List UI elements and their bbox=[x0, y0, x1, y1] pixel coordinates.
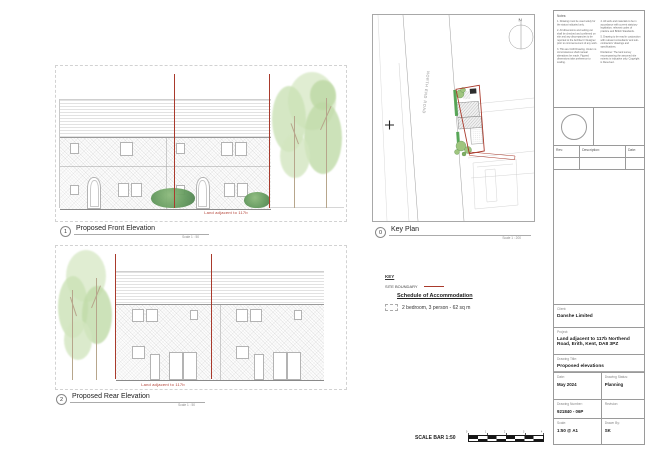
north-label: N bbox=[519, 18, 522, 23]
window bbox=[190, 310, 198, 320]
project-label: Project: bbox=[557, 330, 641, 334]
site-boundary-strip bbox=[470, 152, 516, 160]
front-house-1 bbox=[60, 138, 166, 209]
unit-swatch bbox=[385, 304, 398, 311]
scale-bar: SCALE BAR 1:50 0 1 2 3 4 bbox=[415, 430, 544, 442]
map-cross-marker bbox=[385, 121, 394, 130]
drawing-title-section: Drawing Title: Proposed elevations bbox=[554, 354, 644, 372]
front-roof bbox=[60, 99, 271, 138]
rev-col-label: Rev: bbox=[554, 146, 580, 157]
scale-bar-ticks: 0 1 2 3 4 bbox=[468, 430, 544, 435]
bush bbox=[151, 188, 195, 208]
rear-annotation: Land adjacent to 117b bbox=[103, 382, 223, 387]
rear-elevation-label: 2 Proposed Rear Elevation Scale 1 : 50 bbox=[56, 393, 205, 407]
schedule-item: 2 bedroom, 3 person - 62 sq m bbox=[402, 305, 470, 311]
north-arrow: N bbox=[509, 18, 533, 50]
note: 4. All work and materials to be in accor… bbox=[601, 20, 642, 33]
drawing-sheet: Land adjacent to 117b 1 Proposed Front E… bbox=[0, 0, 650, 459]
key-plan-drawing: N NORTH END ROAD bbox=[372, 14, 535, 222]
rear-door bbox=[254, 354, 264, 380]
drawing-title-value: Proposed elevations bbox=[557, 364, 641, 370]
window bbox=[146, 309, 158, 322]
drawing-title-label: Drawing Title: bbox=[557, 357, 641, 361]
schedule-title: Schedule of Accommodation bbox=[397, 293, 535, 299]
rear-elevation-drawing: Land adjacent to 117b bbox=[55, 245, 347, 390]
rear-wall bbox=[116, 305, 324, 381]
key-plan-label: 0 Key Plan Scale 1 : 200 bbox=[375, 226, 531, 240]
rear-elevation-number: 2 bbox=[56, 394, 67, 405]
front-elevation-title: Proposed Front Elevation bbox=[74, 225, 209, 235]
window bbox=[120, 142, 133, 156]
stamp-circle bbox=[561, 114, 587, 140]
site-boundary-line bbox=[211, 254, 212, 379]
road-name-label: NORTH END ROAD bbox=[422, 71, 430, 114]
key-plan-scale: Scale 1 : 200 bbox=[502, 236, 531, 240]
front-elevation-label: 1 Proposed Front Elevation Scale 1 : 50 bbox=[60, 225, 209, 239]
project-section: Project: Land adjacent to 117b Northend … bbox=[554, 327, 644, 354]
scale-label: Scale: bbox=[557, 421, 598, 425]
window bbox=[236, 309, 248, 322]
project-value: Land adjacent to 117b Northend Road, Eri… bbox=[557, 337, 641, 349]
revision-table-header: Rev: Description: Date: bbox=[554, 145, 644, 157]
site-boundary-swatch bbox=[424, 286, 444, 287]
notes-section: Notes: 1. Drawing must be used solely fo… bbox=[554, 11, 644, 107]
scale-bar-label: SCALE BAR 1:50 bbox=[415, 435, 456, 441]
site-boundary-line bbox=[115, 254, 116, 379]
status-label: Drawing Status: bbox=[605, 375, 641, 379]
window bbox=[176, 143, 185, 154]
trees-left bbox=[58, 250, 114, 380]
rear-elevation-title: Proposed Rear Elevation bbox=[70, 393, 205, 403]
notes-header: Notes: bbox=[557, 14, 641, 18]
rear-roof bbox=[116, 271, 324, 305]
window bbox=[294, 310, 302, 320]
description-col-label: Description: bbox=[580, 146, 626, 157]
window bbox=[132, 346, 145, 359]
legend: KEY SITE BOUNDARY Schedule of Accommodat… bbox=[385, 274, 535, 311]
legend-title: KEY bbox=[385, 274, 535, 279]
bush bbox=[244, 192, 270, 208]
drawing-number-value: 921840 - 06P bbox=[557, 409, 598, 415]
window bbox=[236, 346, 249, 359]
french-door bbox=[287, 352, 301, 380]
note: 3. This are CAD Drawing. Under no circum… bbox=[557, 48, 598, 64]
front-elevation-scale: Scale 1 : 50 bbox=[182, 235, 209, 239]
patio-dotted bbox=[470, 127, 483, 144]
site-boundary-line bbox=[174, 74, 175, 208]
window bbox=[235, 142, 247, 156]
date-col-label: Date: bbox=[626, 146, 644, 157]
front-elevation-number: 1 bbox=[60, 226, 71, 237]
window bbox=[118, 183, 129, 197]
french-door bbox=[273, 352, 287, 380]
title-block: Notes: 1. Drawing must be used solely fo… bbox=[553, 10, 645, 445]
front-door bbox=[87, 177, 101, 209]
key-plan-map: N NORTH END ROAD bbox=[373, 15, 534, 221]
road-lines bbox=[403, 15, 464, 221]
key-plan-title: Key Plan bbox=[389, 226, 531, 236]
window bbox=[250, 309, 262, 322]
drawn-by-value: SK bbox=[605, 428, 641, 434]
note: 2. All dimensions and setting out shall … bbox=[557, 29, 598, 45]
revision-stamp-section bbox=[554, 107, 644, 145]
french-door bbox=[169, 352, 183, 380]
window bbox=[70, 185, 79, 195]
key-plan-number: 0 bbox=[375, 227, 386, 238]
front-door bbox=[196, 177, 210, 209]
date-value: May 2024 bbox=[557, 382, 598, 388]
rear-house-1 bbox=[116, 305, 220, 380]
revision-table-row bbox=[554, 157, 644, 170]
scale-drawn-row: Scale: 1:50 @ A1 Drawn By: SK bbox=[554, 418, 644, 444]
revision-label: Revision: bbox=[605, 402, 641, 406]
window bbox=[224, 183, 235, 197]
rear-elevation-scale: Scale 1 : 50 bbox=[178, 403, 205, 407]
status-value: Planning bbox=[605, 382, 641, 388]
note: Disclaimer: The land survey encompassing… bbox=[601, 51, 642, 64]
rear-building bbox=[115, 271, 324, 379]
scale-bar-blocks bbox=[468, 435, 544, 442]
drawn-by-label: Drawn By: bbox=[605, 421, 641, 425]
french-door bbox=[183, 352, 197, 380]
rear-door bbox=[150, 354, 160, 380]
outbuilding bbox=[470, 88, 477, 93]
date-status-row: Date: May 2024 Drawing Status: Planning bbox=[554, 372, 644, 399]
scale-value: 1:50 @ A1 bbox=[557, 428, 598, 434]
site-boundary-label: SITE BOUNDARY bbox=[385, 284, 418, 289]
note: 1. Drawing must be used solely for the s… bbox=[557, 20, 598, 27]
trees-right bbox=[270, 72, 344, 208]
front-elevation-drawing: Land adjacent to 117b bbox=[55, 65, 347, 222]
note: 5. Drawing to be read in conjunction wit… bbox=[601, 36, 642, 49]
window bbox=[221, 142, 233, 156]
rear-house-2 bbox=[220, 305, 324, 380]
number-revision-row: Drawing Number: 921840 - 06P Revision: bbox=[554, 399, 644, 418]
client-value: Danshe Limited bbox=[557, 314, 641, 320]
window bbox=[70, 143, 79, 154]
client-label: Client: bbox=[557, 307, 641, 311]
client-section: Client: Danshe Limited bbox=[554, 304, 644, 327]
window bbox=[131, 183, 142, 197]
date-label: Date: bbox=[557, 375, 598, 379]
proposed-building-hatch bbox=[458, 116, 482, 129]
window bbox=[132, 309, 144, 322]
drawing-number-label: Drawing Number: bbox=[557, 402, 598, 406]
front-annotation: Land adjacent to 117b bbox=[166, 210, 286, 215]
